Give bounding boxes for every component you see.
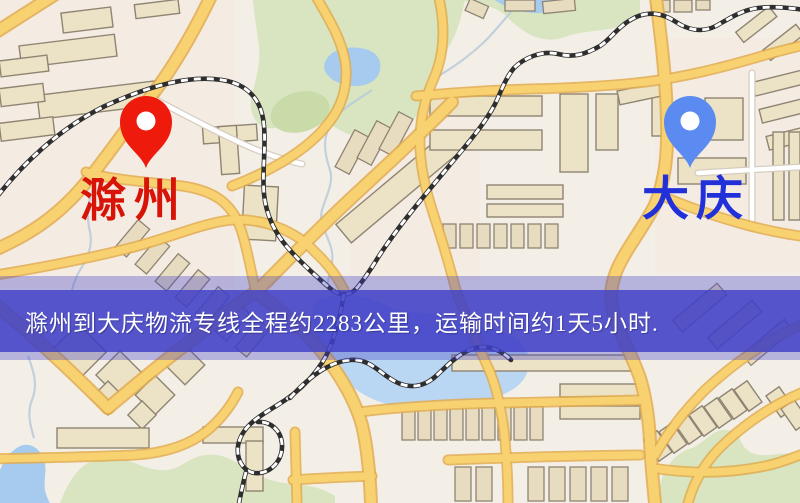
route-info-banner: 滁州到大庆物流专线全程约2283公里，运输时间约1天5小时. <box>0 276 800 360</box>
route-info-text: 滁州到大庆物流专线全程约2283公里，运输时间约1天5小时. <box>25 290 792 352</box>
destination-city-label: 大庆 <box>642 177 750 224</box>
map-background <box>0 0 800 503</box>
map-canvas: 滁州 大庆 滁州到大庆物流专线全程约2283公里，运输时间约1天5小时. <box>0 0 800 503</box>
origin-city-label: 滁州 <box>80 178 188 224</box>
